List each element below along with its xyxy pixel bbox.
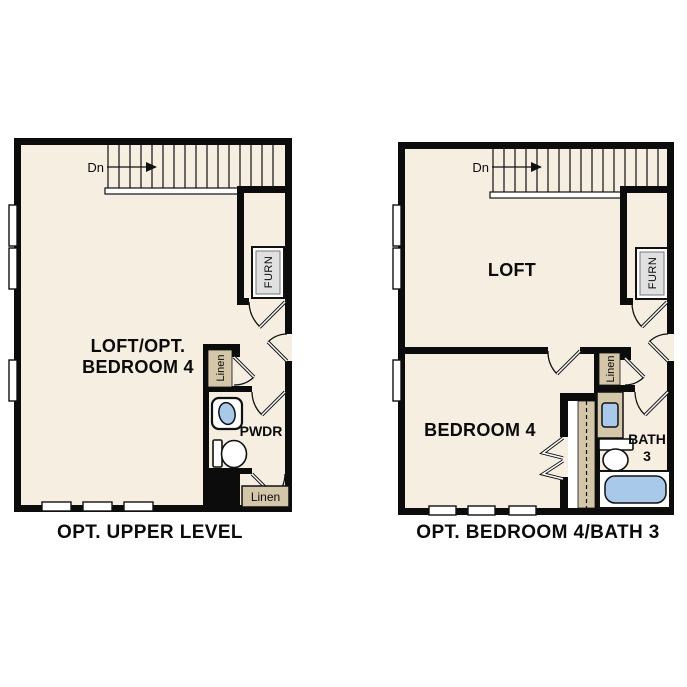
room-label-bedroom4: BEDROOM 4 (424, 420, 536, 440)
window (393, 360, 401, 401)
floor-area (17, 141, 289, 509)
floorplan-page: Dn FURN L (0, 0, 687, 687)
window (393, 205, 401, 246)
linen-upper-label: Linen (215, 355, 227, 382)
window (429, 506, 456, 515)
sink-basin (602, 403, 618, 427)
window (9, 248, 17, 289)
floorplan-opt-bedroom4-bath3: Dn FURN (393, 142, 674, 543)
floor-area (401, 145, 671, 512)
furnace-label: FURN (647, 257, 659, 290)
furnace-label: FURN (263, 256, 275, 289)
stair-rail (490, 192, 624, 198)
closet-floor (568, 401, 578, 508)
plan-title-upper-level: OPT. UPPER LEVEL (57, 522, 243, 543)
linen-lower-label: Linen (251, 490, 280, 504)
window (393, 248, 401, 289)
window (83, 502, 112, 511)
room-label-loft: LOFT (488, 260, 536, 280)
stairs-direction-label: Dn (87, 160, 104, 175)
stair-rail (105, 188, 239, 194)
bath-label-line1: BATH (628, 431, 666, 447)
room-label-loft-line2: BEDROOM 4 (82, 357, 194, 377)
stairs-direction-label: Dn (472, 160, 489, 175)
bathtub-fixture (605, 476, 666, 503)
window (9, 205, 17, 246)
chase-void (203, 468, 240, 512)
toilet-fixture (213, 440, 247, 468)
room-label-loft-line1: LOFT/OPT. (91, 336, 186, 356)
window (42, 502, 71, 511)
window (9, 360, 17, 401)
window (468, 506, 495, 515)
floorplan-opt-upper-level: Dn FURN L (9, 138, 292, 543)
powder-room-label: PWDR (240, 423, 283, 439)
linen-label: Linen (605, 356, 617, 383)
door-opening-right-wall (667, 334, 674, 361)
window (509, 506, 536, 515)
door-opening-right-wall (285, 334, 292, 361)
window (124, 502, 153, 511)
plan-title-bedroom4-bath3: OPT. BEDROOM 4/BATH 3 (416, 522, 659, 543)
bath-label-line2: 3 (643, 448, 651, 464)
